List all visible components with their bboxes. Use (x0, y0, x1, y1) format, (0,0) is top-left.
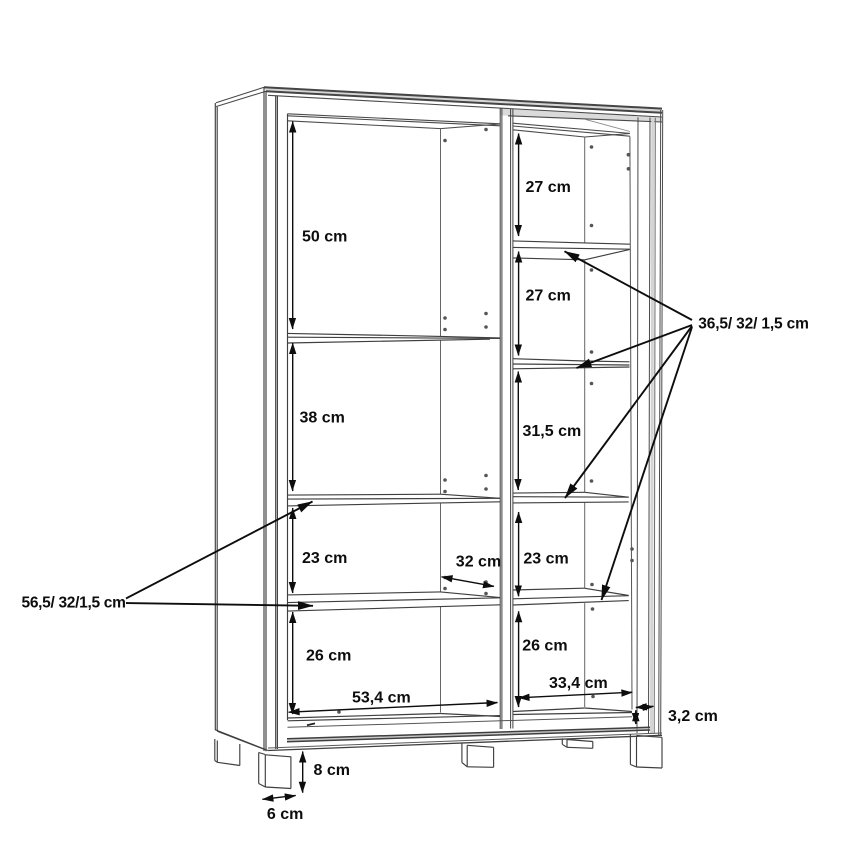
svg-text:36,5/ 32/ 1,5 cm: 36,5/ 32/ 1,5 cm (698, 316, 809, 333)
svg-text:27 cm: 27 cm (526, 288, 571, 305)
svg-text:3,2 cm: 3,2 cm (668, 708, 718, 725)
svg-text:31,5 cm: 31,5 cm (523, 423, 582, 440)
svg-text:50 cm: 50 cm (302, 229, 347, 246)
svg-text:26 cm: 26 cm (306, 648, 351, 665)
svg-text:53,4 cm: 53,4 cm (352, 690, 411, 707)
svg-text:23 cm: 23 cm (523, 551, 568, 568)
svg-text:32 cm: 32 cm (456, 554, 501, 571)
svg-text:38 cm: 38 cm (300, 410, 345, 427)
svg-text:8 cm: 8 cm (314, 762, 350, 779)
svg-text:26 cm: 26 cm (522, 637, 567, 654)
svg-text:27 cm: 27 cm (526, 179, 571, 196)
svg-text:6 cm: 6 cm (267, 806, 303, 823)
svg-text:56,5/ 32/1,5 cm: 56,5/ 32/1,5 cm (22, 595, 126, 612)
svg-text:33,4 cm: 33,4 cm (549, 675, 608, 692)
svg-text:23 cm: 23 cm (302, 550, 347, 567)
